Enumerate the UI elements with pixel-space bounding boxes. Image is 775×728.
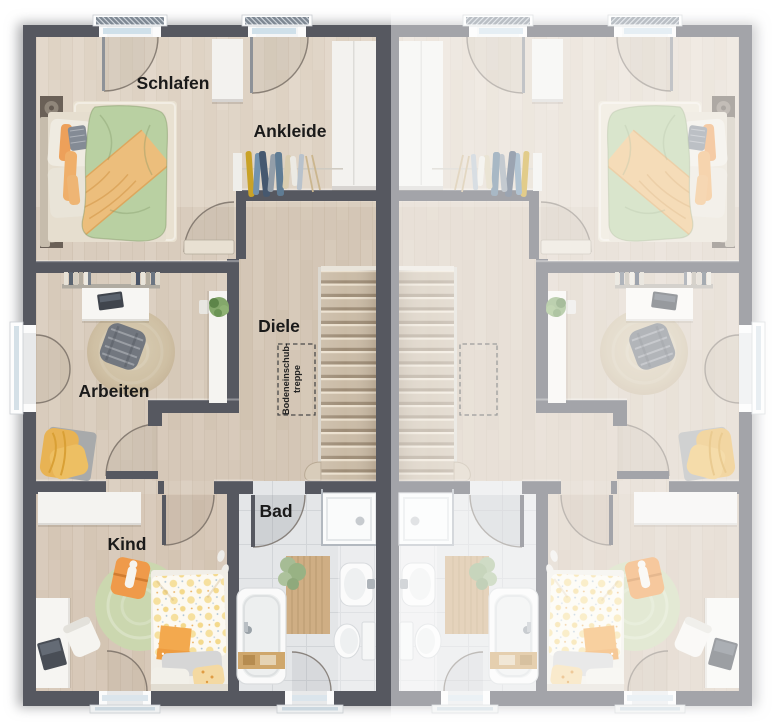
svg-text:Bad: Bad xyxy=(259,501,292,521)
svg-text:Arbeiten: Arbeiten xyxy=(79,381,150,401)
svg-text:treppe: treppe xyxy=(292,365,302,393)
svg-text:Schlafen: Schlafen xyxy=(137,73,210,93)
svg-text:Bodeneinschub-: Bodeneinschub- xyxy=(281,343,291,415)
svg-text:Ankleide: Ankleide xyxy=(254,121,327,141)
svg-text:Diele: Diele xyxy=(258,316,300,336)
svg-text:Kind: Kind xyxy=(108,534,147,554)
